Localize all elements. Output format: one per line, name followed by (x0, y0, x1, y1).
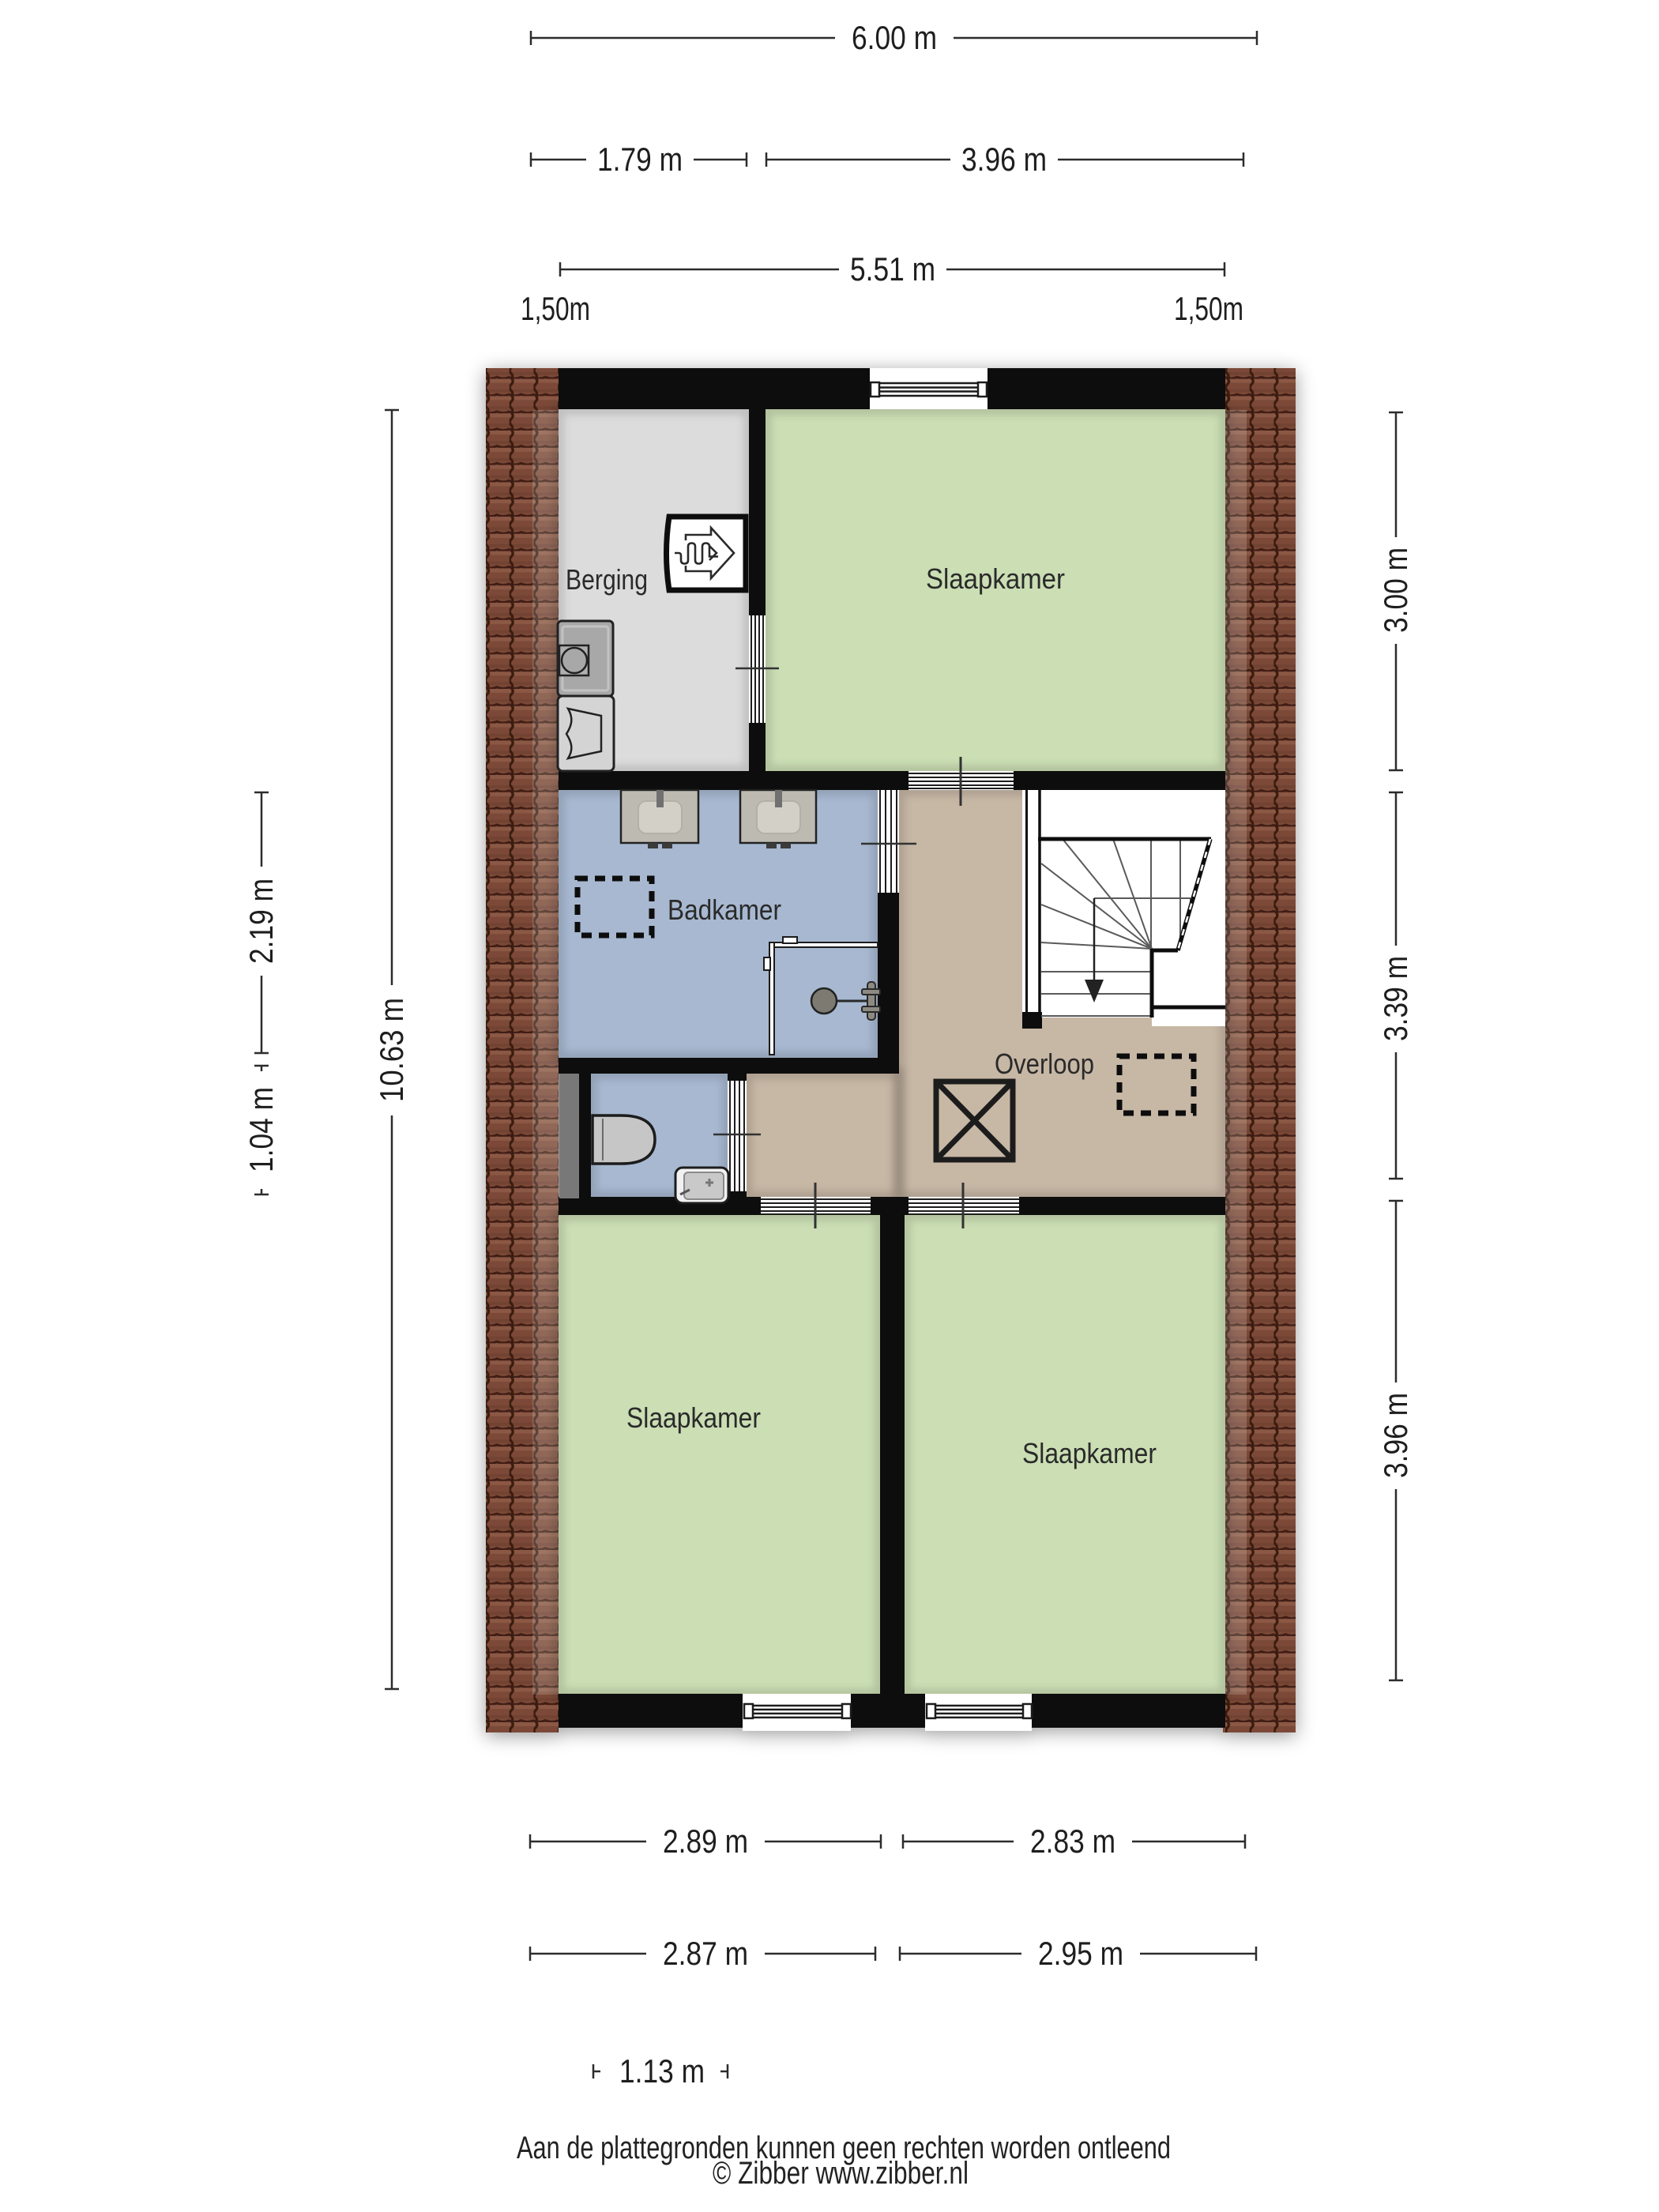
svg-text:1.79 m: 1.79 m (597, 141, 683, 178)
svg-text:1.13 m: 1.13 m (619, 2052, 705, 2090)
svg-text:Berging: Berging (566, 563, 648, 596)
svg-text:2.95 m: 2.95 m (1038, 1935, 1123, 1972)
svg-text:© Zibber www.zibber.nl: © Zibber www.zibber.nl (713, 2156, 969, 2191)
svg-text:Slaapkamer: Slaapkamer (926, 562, 1065, 595)
svg-text:3.00 m: 3.00 m (1377, 547, 1414, 633)
svg-text:3.39 m: 3.39 m (1377, 956, 1414, 1041)
svg-text:3.96 m: 3.96 m (1377, 1393, 1414, 1478)
svg-text:6.00 m: 6.00 m (852, 19, 937, 56)
svg-text:10.63 m: 10.63 m (373, 998, 410, 1102)
svg-text:Overloop: Overloop (995, 1048, 1094, 1080)
svg-text:1.04 m: 1.04 m (243, 1087, 280, 1172)
svg-text:Badkamer: Badkamer (668, 893, 781, 926)
svg-text:5.51 m: 5.51 m (850, 250, 935, 288)
svg-text:2.83 m: 2.83 m (1030, 1823, 1115, 1860)
svg-text:Slaapkamer: Slaapkamer (1022, 1437, 1157, 1469)
svg-text:1,50m: 1,50m (521, 290, 590, 327)
svg-text:3.96 m: 3.96 m (961, 141, 1047, 178)
svg-text:2.87 m: 2.87 m (663, 1935, 748, 1972)
svg-text:1,50m: 1,50m (1174, 290, 1243, 327)
svg-text:2.89 m: 2.89 m (663, 1823, 748, 1860)
svg-text:Slaapkamer: Slaapkamer (626, 1401, 761, 1434)
svg-text:2.19 m: 2.19 m (243, 878, 280, 964)
